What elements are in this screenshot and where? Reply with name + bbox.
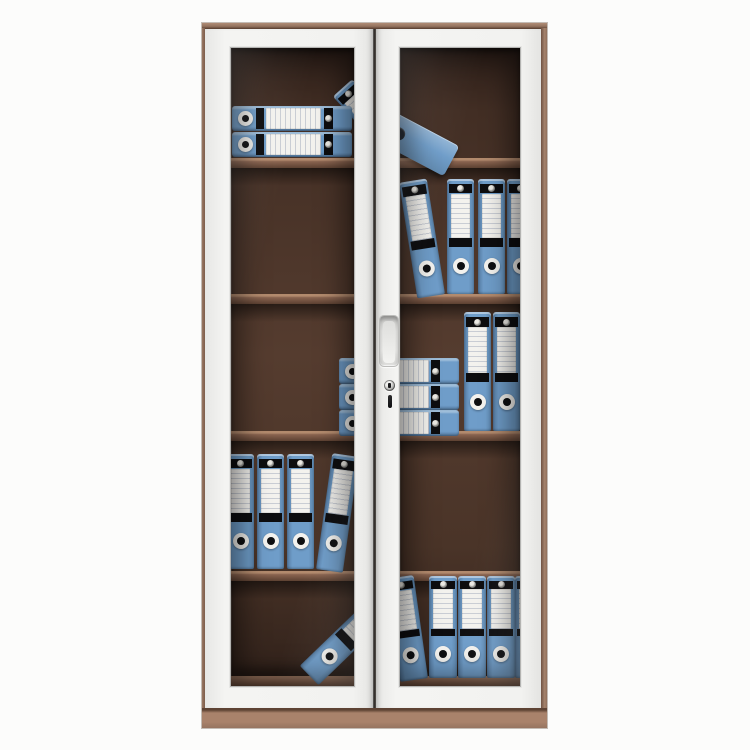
binder-ring-hole-icon <box>345 390 355 405</box>
binder <box>257 454 284 569</box>
binder-ring-hole-icon <box>345 416 355 431</box>
shelf-board <box>231 431 354 441</box>
binder <box>232 106 352 131</box>
grommet-icon <box>237 460 244 467</box>
cabinet-floor-board <box>231 676 354 687</box>
binder-ring-hole-icon <box>293 533 309 549</box>
binder-label <box>482 194 501 238</box>
binder <box>507 179 521 294</box>
left-door <box>205 28 373 709</box>
binder-ring-hole-icon <box>263 533 279 549</box>
binder <box>399 178 445 298</box>
binder-label <box>399 589 417 631</box>
door-gap <box>373 28 376 709</box>
binder-label <box>433 589 453 628</box>
filing-cabinet <box>202 23 547 728</box>
binder <box>339 384 355 410</box>
grommet-icon <box>432 420 439 427</box>
grommet-icon <box>267 460 274 467</box>
binder-ring-hole-icon <box>435 646 451 662</box>
grommet-icon <box>503 319 510 326</box>
cabinet-base <box>202 708 547 728</box>
grommet-icon <box>325 115 332 122</box>
binder-ring-hole-icon <box>233 533 249 549</box>
grommet-icon <box>474 319 481 326</box>
binder <box>230 454 254 569</box>
binder <box>447 179 474 294</box>
binder <box>339 358 355 384</box>
binder-label <box>468 327 487 373</box>
cabinet-top-trim <box>202 23 547 29</box>
cabinet-left-trim <box>202 28 205 708</box>
grommet-icon <box>432 394 439 401</box>
binder-ring-hole-icon <box>464 646 480 662</box>
grommet-icon <box>469 581 476 588</box>
binder-label <box>266 108 321 129</box>
binder-label <box>451 194 470 238</box>
binder-label <box>462 589 482 628</box>
keyhole-slot-icon <box>388 395 392 408</box>
binder-label <box>399 412 429 434</box>
keyhole-lock-icon <box>384 380 395 391</box>
grommet-icon <box>432 368 439 375</box>
grommet-icon <box>399 582 405 590</box>
binder-ring-hole-icon <box>470 394 486 410</box>
grommet-icon <box>498 581 505 588</box>
binder-ring-hole-icon <box>318 645 341 668</box>
binder <box>399 384 459 410</box>
binder-label <box>291 469 310 513</box>
binder-ring-hole-icon <box>238 111 253 126</box>
grommet-icon <box>488 185 495 192</box>
binder-ring-hole-icon <box>238 137 253 152</box>
shelf-board <box>231 294 354 304</box>
binder-ring-hole-icon <box>453 258 469 274</box>
binder <box>339 410 355 436</box>
binder <box>399 358 459 384</box>
binder <box>515 576 521 678</box>
grommet-icon <box>340 461 348 469</box>
binder-ring-hole-icon <box>402 646 420 664</box>
binder <box>300 586 355 685</box>
binder-ring-hole-icon <box>345 364 355 379</box>
binder-ring-hole-icon <box>499 394 515 410</box>
binder-label <box>497 327 516 373</box>
grommet-icon <box>440 581 447 588</box>
binder-label <box>491 589 511 628</box>
grommet-icon <box>517 185 521 192</box>
binder <box>478 179 505 294</box>
binder-label <box>519 589 521 628</box>
grommet-icon <box>457 185 464 192</box>
shelf-board <box>231 158 354 168</box>
binder <box>232 132 352 157</box>
binder-label <box>405 194 432 242</box>
right-door <box>376 28 541 709</box>
binder-label <box>399 360 429 382</box>
binder-ring-hole-icon <box>418 259 436 277</box>
door-handle-icon <box>379 315 399 367</box>
binder <box>287 454 314 569</box>
binder <box>487 576 515 678</box>
binder <box>464 312 491 431</box>
binder-ring-hole-icon <box>493 646 509 662</box>
product-photo <box>0 0 750 750</box>
grommet-icon <box>297 460 304 467</box>
binder-ring-hole-icon <box>399 124 407 142</box>
grommet-icon <box>410 186 418 194</box>
binder-ring-hole-icon <box>513 258 522 274</box>
glass-pane-right <box>399 47 521 687</box>
binder <box>316 453 355 573</box>
binder-label <box>328 469 353 516</box>
binder-label <box>261 469 280 513</box>
binder <box>399 410 459 436</box>
binder-label <box>399 386 429 408</box>
binder-ring-hole-icon <box>484 258 500 274</box>
grommet-icon <box>325 141 332 148</box>
binder <box>458 576 486 678</box>
binder-ring-hole-icon <box>324 534 342 552</box>
glass-pane-left <box>230 47 355 687</box>
binder <box>493 312 520 431</box>
cabinet-right-trim <box>541 28 547 708</box>
binder <box>429 576 457 678</box>
binder-label <box>266 134 321 155</box>
shelf-board <box>231 571 354 581</box>
binder-label <box>231 469 250 513</box>
binder-label <box>511 194 521 238</box>
